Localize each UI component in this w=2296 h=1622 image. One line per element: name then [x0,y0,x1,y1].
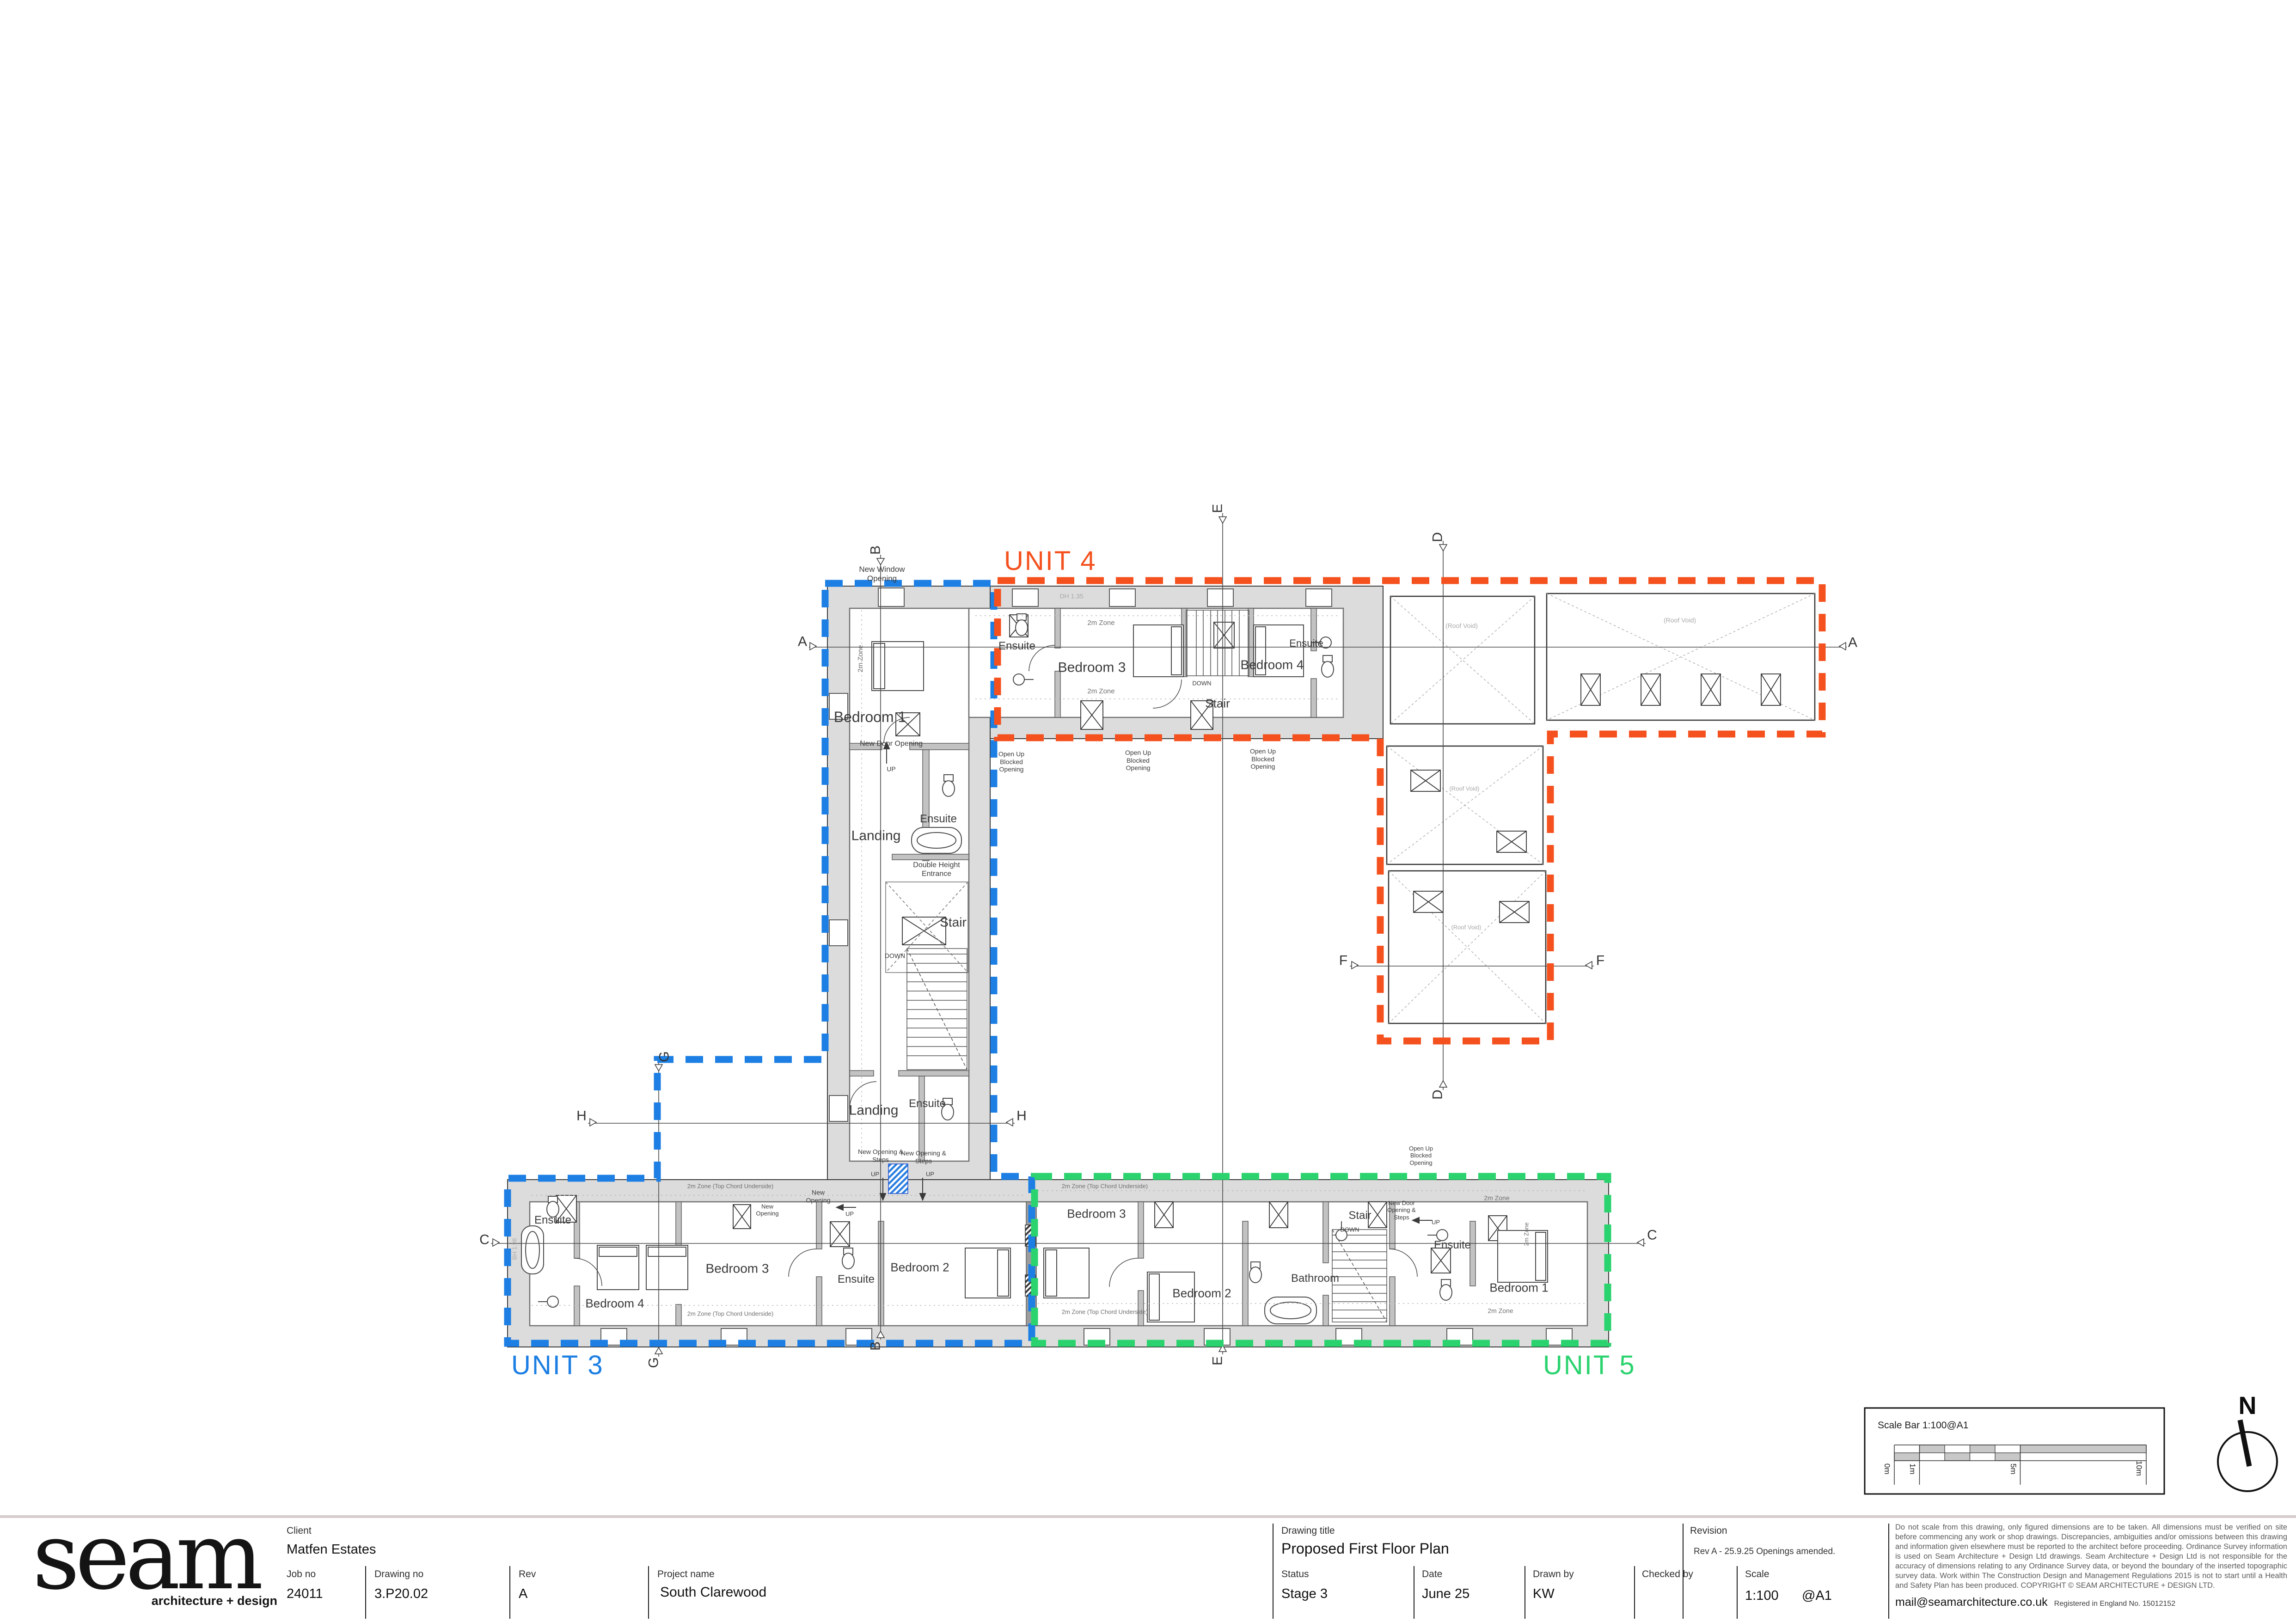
email-address: mail@seamarchitecture.co.uk [1895,1596,2048,1609]
rev-value: A [519,1586,527,1602]
scale-value: 1:100 [1745,1588,1779,1604]
annotation-up: UP [1432,1218,1440,1225]
revision-label: Revision [1690,1525,1727,1536]
room-label-bedroom4: Bedroom 4 [585,1297,644,1311]
section-marker-g: G [656,1051,672,1062]
annotation-new-window-opening: New Window Opening [850,565,914,583]
annotation-bh198: BH 1.98 [511,1238,518,1260]
job-no-label: Job no [287,1569,316,1580]
room-label-bedroom1: Bedroom 1 [834,709,906,726]
annotation-2m-zone-chord: 2m Zone (Top Chord Underside) [687,1310,773,1317]
section-marker-c: C [479,1231,490,1248]
room-label-ensuite: Ensuite [920,813,957,826]
annotation-up: UP [871,1170,879,1177]
annotation-2m-zone-chord: 2m Zone (Top Chord Underside) [1062,1308,1148,1315]
annotation-2m-zone: 2m Zone [857,645,865,672]
annotation-2m-zone: 2m Zone [1484,1194,1509,1202]
room-label-bedroom3: Bedroom 3 [1067,1207,1126,1221]
annotation-roof-void: (Roof Void) [1664,617,1696,624]
separator [1634,1566,1635,1619]
title-block-divider [0,1515,2296,1518]
disclaimer-notes: Do not scale from this drawing, only fig… [1895,1523,2287,1591]
scale-bar-tick-5m: 5m [2008,1463,2018,1475]
section-marker-e: E [1209,504,1225,513]
unit5-title: UNIT 5 [1543,1350,1636,1381]
project-name-label: Project name [657,1569,715,1580]
annotation-open-up-blocked: Open Up Blocked Opening [1401,1145,1441,1166]
annotation-new-opening: New Opening [750,1203,785,1218]
seam-logo: seam [32,1511,259,1603]
separator [509,1566,510,1619]
checked-by-label: Checked by [1642,1569,1693,1580]
section-marker-h: H [1016,1108,1027,1124]
annotation-dh135: DH 1.35 [1059,593,1083,600]
separator [1525,1566,1525,1619]
drawing-no-label: Drawing no [374,1569,423,1580]
status-value: Stage 3 [1281,1586,1328,1602]
annotation-2m-zone: 2m Zone [1087,687,1114,696]
annotation-open-up-blocked: Open Up Blocked Opening [1241,747,1285,771]
floor-plan-drawing [0,0,2296,1622]
room-label-bedroom2: Bedroom 2 [890,1261,949,1275]
client-label: Client [287,1525,312,1536]
room-label-ensuite: Ensuite [909,1097,946,1110]
project-name-value: South Clarewood [660,1585,766,1600]
section-marker-b: B [867,1341,883,1351]
room-label-bedroom3: Bedroom 3 [706,1261,769,1276]
section-marker-d: D [1429,532,1445,542]
room-label-bedroom3: Bedroom 3 [1058,659,1126,675]
contact-line: mail@seamarchitecture.co.ukRegistered in… [1895,1596,2175,1609]
scale-label: Scale [1745,1569,1769,1580]
separator [1888,1524,1889,1619]
annotation-new-door-opening-steps: New Door Opening & Steps [1381,1200,1422,1221]
section-marker-a: A [798,633,807,649]
annotation-down: DOWN [1192,679,1211,686]
north-arrow [2218,1420,2277,1491]
drawing-sheet: UNIT 4 UNIT 3 UNIT 5 New Window Opening … [0,0,2296,1622]
room-label-bathroom: Bathroom [1291,1272,1339,1285]
annotation-new-opening-steps: New Opening & Steps [857,1148,904,1163]
annotation-roof-void: (Roof Void) [1445,622,1478,630]
annotation-new-opening: New Opening [800,1188,837,1204]
room-label-bedroom2: Bedroom 2 [1172,1286,1231,1301]
scale-bar-tick-1m: 1m [1908,1463,1917,1475]
room-label-stair: Stair [1348,1209,1371,1222]
scale-bar-title: Scale Bar 1:100@A1 [1878,1420,1968,1431]
north-needle [2240,1420,2249,1466]
room-label-landing: Landing [849,1102,899,1118]
date-value: June 25 [1422,1586,1469,1602]
annotation-double-height: Double Height Entrance [906,861,967,879]
drawing-no-value: 3.P20.02 [374,1586,428,1602]
scale-suffix: @A1 [1802,1588,1832,1604]
room-label-ensuite: Ensuite [1289,637,1323,649]
annotation-up: UP [887,765,895,773]
annotation-down: DOWN [885,952,905,960]
separator [1414,1566,1414,1619]
new-opening-hatch-blue [888,1164,908,1194]
drawn-by-label: Drawn by [1533,1569,1574,1580]
seam-logo-tagline: architecture + design [116,1594,277,1608]
section-marker-h: H [576,1108,587,1124]
separator [365,1566,366,1619]
room-label-ensuite: Ensuite [998,640,1035,653]
annotation-2m-zone: 2m Zone [1087,619,1114,627]
room-label-ensuite: Ensuite [534,1214,571,1227]
separator [648,1566,649,1619]
drawing-title-value: Proposed First Floor Plan [1281,1540,1449,1557]
room-label-stair: Stair [940,914,967,930]
room-label-landing: Landing [851,827,901,844]
section-marker-c: C [1647,1227,1657,1243]
scale-bar-tick-0m: 0m [1882,1463,1892,1475]
section-marker-b: B [867,545,883,555]
annotation-2m-zone-chord: 2m Zone (Top Chord Underside) [687,1182,773,1189]
room-label-ensuite: Ensuite [838,1273,875,1286]
job-no-value: 24011 [287,1586,323,1602]
north-label: N [2239,1391,2257,1420]
separator [1737,1566,1738,1619]
registration-number: Registered in England No. 15012152 [2054,1600,2175,1608]
date-label: Date [1422,1569,1442,1580]
annotation-open-up-blocked: Open Up Blocked Opening [1116,749,1160,772]
separator [1273,1524,1274,1619]
section-marker-e: E [1209,1356,1225,1365]
room-label-stair: Stair [1205,697,1230,711]
section-marker-f: F [1596,952,1604,968]
annotation-up: UP [845,1210,854,1217]
annotation-down: DOWN [1340,1226,1359,1233]
annotation-roof-void: (Roof Void) [1449,785,1479,792]
client-value: Matfen Estates [287,1542,376,1557]
annotation-2m-zone: 2m Zone [1488,1307,1513,1315]
room-label-ensuite: Ensuite [1434,1239,1471,1252]
room-label-bedroom1: Bedroom 1 [1489,1281,1548,1295]
unit3-title: UNIT 3 [511,1350,604,1381]
annotation-2m-zone: 2m Zone [1523,1222,1530,1246]
section-marker-a: A [1848,634,1857,650]
annotation-up: UP [926,1170,934,1177]
section-marker-d: D [1429,1089,1445,1100]
room-label-bedroom4: Bedroom 4 [1241,657,1304,672]
annotation-open-up-blocked: Open Up Blocked Opening [990,750,1034,773]
annotation-new-opening-steps: New Opening & Steps [900,1149,947,1164]
annotation-2m-zone-chord: 2m Zone (Top Chord Underside) [1062,1182,1148,1189]
scale-bar-tick-10m: 10m [2134,1461,2143,1476]
drawn-by-value: KW [1533,1586,1555,1602]
drawing-title-label: Drawing title [1281,1525,1335,1536]
status-label: Status [1281,1569,1309,1580]
section-marker-g: G [645,1357,661,1368]
revision-note: Rev A - 25.9.25 Openings amended. [1694,1547,1835,1557]
unit4-title: UNIT 4 [1004,545,1097,576]
rev-label: Rev [519,1569,536,1580]
annotation-roof-void: (Roof Void) [1451,924,1481,930]
section-marker-f: F [1339,952,1347,968]
annotation-new-door-opening: New Door Opening [860,740,923,749]
